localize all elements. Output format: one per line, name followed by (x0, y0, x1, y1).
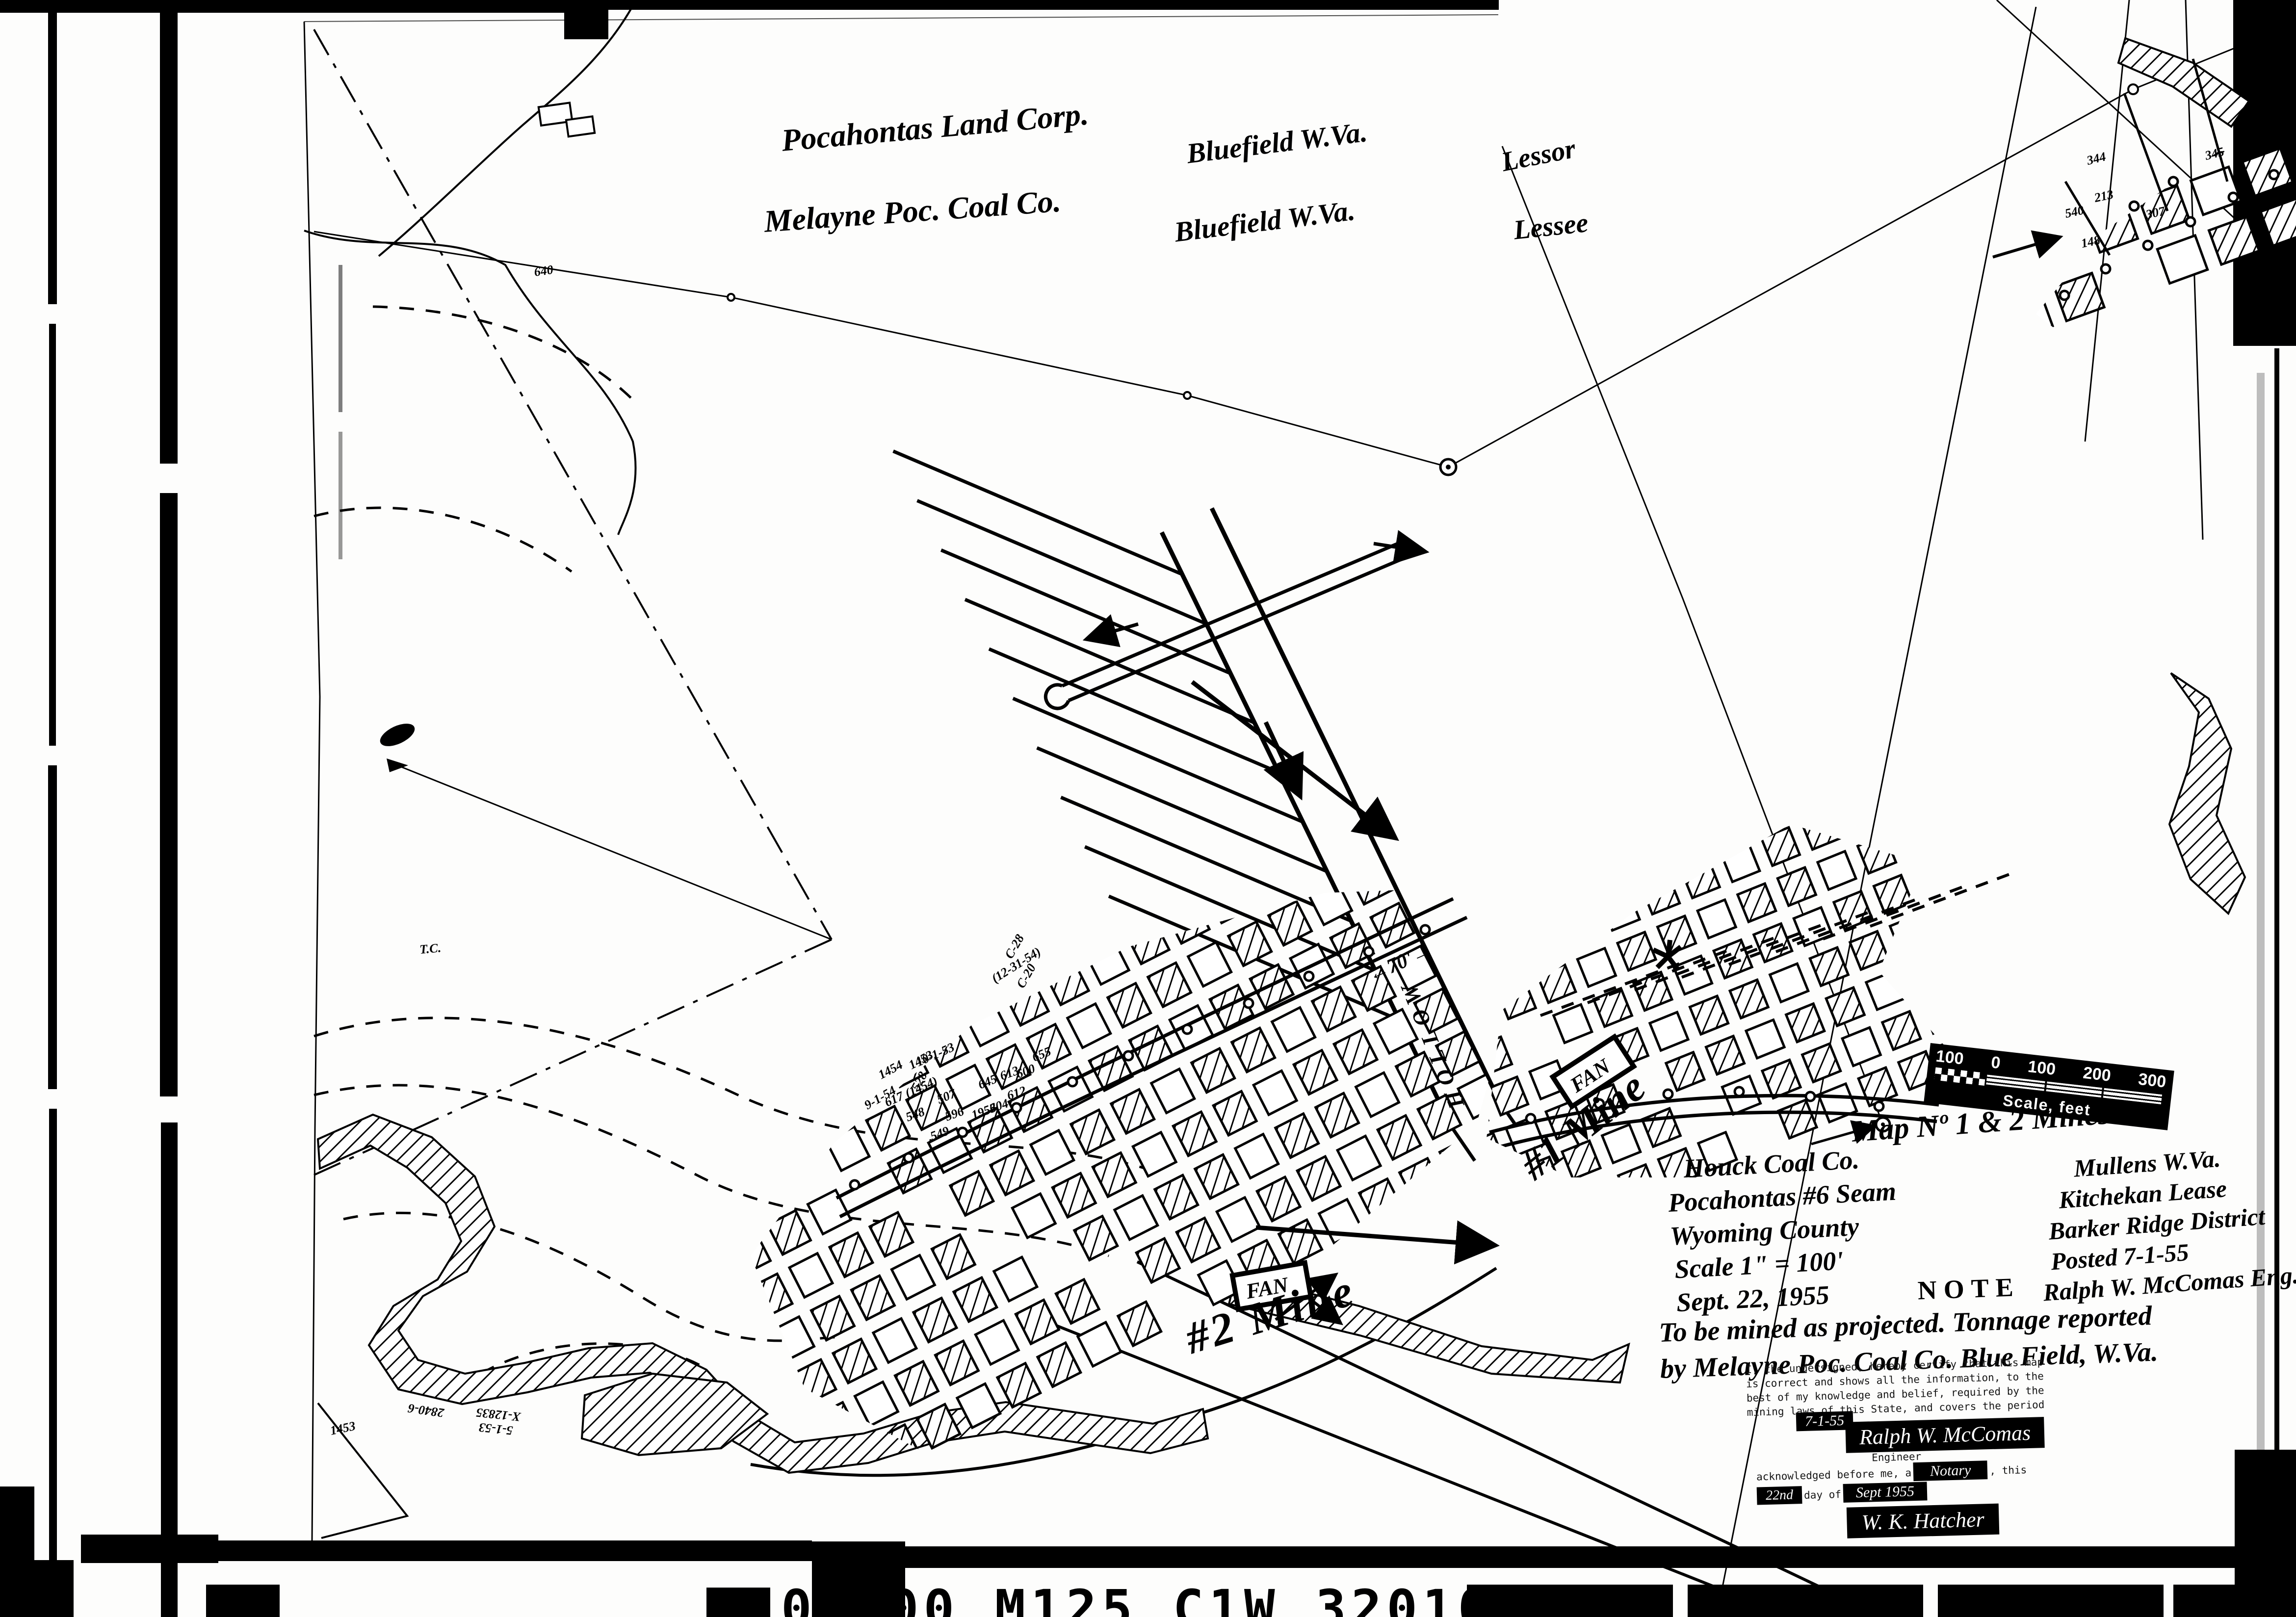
mine-pillar (1213, 1091, 1256, 1135)
mine-pillar (873, 1319, 916, 1363)
mine-pillar (1762, 1060, 1800, 1098)
mine-pillar (1673, 956, 1712, 994)
mine-pillar (954, 1278, 997, 1322)
mine-pillar (1882, 1011, 1921, 1049)
mine-pillar (1334, 1030, 1377, 1074)
mine-pillar (702, 1082, 745, 1126)
mine-pillar (1906, 955, 1944, 993)
mine-pillar (793, 1359, 836, 1404)
mine-pillar (895, 1361, 938, 1406)
mine-pillar (1497, 981, 1536, 1019)
mine-pillar (1761, 827, 1800, 865)
mine-pillar (1312, 987, 1356, 1031)
mine-pillar (1697, 900, 1736, 938)
mine-pillar (1118, 1302, 1161, 1346)
mine-pillar (1316, 1093, 1359, 1137)
mine-pillar (1232, 1028, 1275, 1072)
survey-station (1068, 1077, 1077, 1086)
mine-pillar (1056, 1279, 1099, 1324)
mine-pillar (1126, 920, 1169, 964)
notary-tail: , this (1989, 1464, 2027, 1477)
projected-room-line (893, 451, 1182, 574)
mine-pillar (1257, 1177, 1300, 1221)
survey-station (904, 1153, 913, 1162)
mine-pillar (1145, 857, 1188, 901)
mine-pillar (1690, 996, 1728, 1034)
mine-pillar (833, 1339, 876, 1383)
mine-pillar (1378, 1116, 1421, 1160)
survey-station (2101, 264, 2110, 273)
mine-pillar (932, 1235, 975, 1279)
mine-pillar (1148, 963, 1191, 1007)
survey-station (1664, 1090, 1672, 1098)
mine-pillar (1111, 1090, 1154, 1134)
mine-pillar (705, 1188, 749, 1232)
mine-pillar (1802, 1043, 1841, 1082)
survey-station (1124, 1051, 1133, 1060)
mine-pillar (1481, 940, 1519, 979)
mine-pillar (975, 1320, 1018, 1364)
mine-pillar (1074, 1216, 1118, 1260)
mine-pillar (1538, 1197, 1576, 1235)
survey-station (958, 1128, 967, 1137)
mine-pillar (994, 1257, 1037, 1301)
survey-station (2143, 241, 2152, 250)
mine-pillar (1086, 940, 1129, 985)
mine-pillar (1850, 931, 1888, 969)
mine-pillar (1738, 884, 1776, 922)
notary-date: Sept 1955 (1843, 1482, 1927, 1502)
mine-pillar (1272, 1008, 1315, 1052)
mine-pillar (1337, 1136, 1381, 1180)
survey-number: 2840-6 (407, 1401, 445, 1420)
notary-word: Notary (1913, 1461, 1988, 1481)
survey-station (1806, 1092, 1815, 1101)
mine-pillar (1866, 971, 1905, 1010)
mine-pillar (1777, 867, 1816, 906)
survey-station (1735, 1087, 1744, 1096)
mine-pillar (855, 1382, 898, 1426)
scale-tick: 200 (2082, 1064, 2112, 1086)
notary-signature: W. K. Hatcher (1847, 1504, 2000, 1539)
mine-pillar (1642, 1108, 1680, 1147)
mine-pillar (1746, 1020, 1784, 1058)
survey-number: 640 (533, 262, 554, 279)
mine-pillar (768, 1210, 811, 1254)
survey-station (2169, 177, 2178, 186)
mine-pillar (863, 1000, 906, 1044)
survey-station (1244, 999, 1253, 1008)
mine-pillar (771, 1317, 814, 1361)
scale-tick: 100 (1935, 1047, 1965, 1069)
mine-pillar (1482, 1173, 1520, 1211)
mine-pillar (1490, 1077, 1528, 1115)
mine-pillar (851, 1276, 894, 1320)
mine-pillar (1681, 860, 1720, 898)
mine-pillar (684, 1146, 727, 1190)
projected-room-line (1037, 748, 1326, 871)
mine-pillar (1136, 1238, 1179, 1282)
mine-pillar (783, 1041, 826, 1085)
mine-pillar (1068, 1004, 1111, 1048)
mine-pillar (935, 1341, 978, 1385)
mine-pillar (2003, 292, 2053, 340)
mine-pillar (1064, 898, 1107, 942)
mine-pillar (1618, 932, 1656, 970)
mine-pillar (1561, 908, 1599, 946)
projected-room-line (1061, 797, 1350, 920)
mine-pillar (913, 1298, 957, 1342)
mine-pillar (1650, 1012, 1688, 1050)
mine-pillar (1538, 965, 1576, 1003)
mine-pillar (1857, 835, 1896, 873)
mine-pillar (1188, 942, 1231, 987)
projected-room-line (941, 550, 1230, 673)
mine-pillar (764, 1104, 808, 1148)
projected-room-line (1013, 699, 1302, 822)
mine-pillar (1400, 1158, 1443, 1202)
mine-pillar (1078, 1322, 1121, 1366)
mine-pillar (1498, 1213, 1537, 1252)
mine-map-scan: FAN FAN #1 Mine #2 Mine HOLLOW ←70'→ 145… (0, 0, 2296, 1617)
mine-pillar (1294, 1050, 1337, 1095)
survey-number: 344 (2085, 149, 2107, 168)
mine-pillar (991, 1151, 1034, 1195)
mine-pillar (1012, 1194, 1055, 1238)
mine-pillar (1794, 908, 1832, 946)
mine-pillar (1842, 795, 1880, 834)
mine-pillar (742, 1062, 785, 1106)
mine-pillar (943, 959, 987, 1003)
mine-pillar (1521, 924, 1560, 963)
survey-number: 10-1-53 (914, 1040, 957, 1069)
mine-pillar (1642, 876, 1680, 914)
mine-pillar (1217, 1198, 1260, 1242)
mine-pillar (789, 1253, 833, 1298)
mine-pillar (891, 1255, 935, 1300)
film-footer-code: 02100 M125 C1W 320102 (781, 1579, 1529, 1617)
mine-pillar (1359, 1179, 1403, 1223)
scale-tick: 100 (2027, 1057, 2057, 1079)
mine-pillar (808, 1190, 851, 1234)
survey-station (1305, 972, 1313, 981)
mine-pillar (950, 1172, 993, 1216)
mine-pillar (1192, 1048, 1235, 1093)
survey-station (1364, 947, 1373, 956)
mine-pillar (1038, 1343, 1081, 1387)
mine-pillar (1052, 1173, 1096, 1217)
survey-station (2186, 217, 2195, 226)
mine-pillar (1108, 983, 1151, 1027)
mine-pillar (1706, 1036, 1744, 1074)
mine-pillar (1195, 1155, 1238, 1199)
mine-pillar (1577, 948, 1616, 987)
mine-pillar (1269, 901, 1312, 945)
survey-station (1183, 1025, 1192, 1034)
mine-pillar (965, 1002, 1008, 1046)
mine-pillar (2018, 174, 2068, 222)
certification-block: I, the undersigned, hereby certify that … (1746, 1356, 2006, 1568)
survey-numbers-layer: 14541453617 (1454)5285485075495966136006… (329, 144, 2225, 1438)
survey-number: T.C. (419, 940, 442, 957)
mine-pillar (1578, 1181, 1617, 1219)
mine-pillar (1466, 1133, 1504, 1172)
survey-station (2060, 291, 2069, 300)
survey-station (2270, 170, 2278, 179)
mine-pillar (1276, 1114, 1319, 1158)
survey-station (1875, 1102, 1883, 1111)
mine-pillar (1151, 1069, 1195, 1113)
mine-pillar (1093, 1153, 1136, 1197)
mine-pillar (823, 1020, 866, 1065)
mine-pillar (2121, 136, 2171, 184)
mine-pillar (1228, 922, 1272, 966)
mine-pillar (1770, 964, 1808, 1002)
survey-station (2130, 202, 2139, 210)
mine-pillar (1045, 961, 1089, 1005)
mine-pillar (1984, 242, 2035, 290)
projected-room-line (989, 649, 1278, 772)
mine-pillar (1722, 843, 1760, 882)
mine-pillar (749, 1274, 792, 1318)
mine-pillar (1253, 1071, 1297, 1115)
survey-number: 540 (2063, 203, 2085, 220)
mine-pillar (1618, 1165, 1657, 1203)
mine-pillar (1235, 1134, 1278, 1178)
mine-pillar (1016, 1300, 1059, 1344)
mine-pillar (1801, 811, 1840, 850)
mine-pillar (2157, 235, 2207, 284)
mine-pillar (811, 1296, 855, 1340)
survey-station (2229, 193, 2238, 202)
mine-pillar (903, 980, 946, 1024)
mine-pillar (1440, 1138, 1483, 1182)
mine-pillar (866, 1106, 910, 1150)
mine-pillar (1279, 1220, 1322, 1264)
survey-station (1421, 925, 1430, 934)
mine-pillar (1031, 1130, 1074, 1174)
mine-pillar (1786, 1004, 1825, 1042)
mine-pillar (1778, 1100, 1817, 1138)
projected-room-line (965, 600, 1254, 723)
survey-station (1526, 1114, 1535, 1123)
mine-pillar (1071, 1110, 1114, 1154)
mine-pillar (1115, 1196, 1158, 1240)
mine-pillar (830, 1233, 873, 1277)
projected-room-line (917, 500, 1206, 624)
mine-pillar (1356, 1072, 1399, 1117)
notary-intro: acknowledged before me, a (1756, 1467, 1912, 1483)
mine-pillar (1730, 980, 1768, 1018)
mine-pillar (1155, 1175, 1198, 1219)
survey-number: 213 (2092, 187, 2114, 205)
mine-pillar (1601, 892, 1640, 930)
mine-pillar (1826, 988, 1864, 1026)
notary-day: 22nd (1757, 1486, 1802, 1505)
mine-pillar (1133, 1132, 1176, 1176)
mine-pillar (1173, 1112, 1216, 1156)
mine-pillar (997, 1363, 1041, 1408)
mine-pillar (728, 1231, 771, 1275)
mine-pillar (1297, 1156, 1340, 1200)
notary-day-of: day of (1804, 1488, 1841, 1501)
scale-tick: 300 (2137, 1070, 2167, 1092)
engineer-signature: Ralph W. McComas (1845, 1417, 2045, 1453)
survey-station (1012, 1103, 1021, 1112)
mine-pillar (1666, 1052, 1704, 1091)
mine-pillar (1104, 877, 1148, 921)
mine-pillar (1554, 1004, 1592, 1043)
mine-pillar (1890, 915, 1928, 953)
mine-pillar (870, 1212, 913, 1256)
survey-station (850, 1180, 859, 1189)
period-date: 7-1-55 (1796, 1411, 1853, 1431)
scale-tick: 0 (1990, 1053, 2001, 1073)
mine-pillar (1922, 995, 1960, 1034)
survey-number: 1454 (876, 1057, 905, 1082)
mine-pillar (1176, 1218, 1220, 1262)
mine-pillar (1818, 851, 1856, 889)
